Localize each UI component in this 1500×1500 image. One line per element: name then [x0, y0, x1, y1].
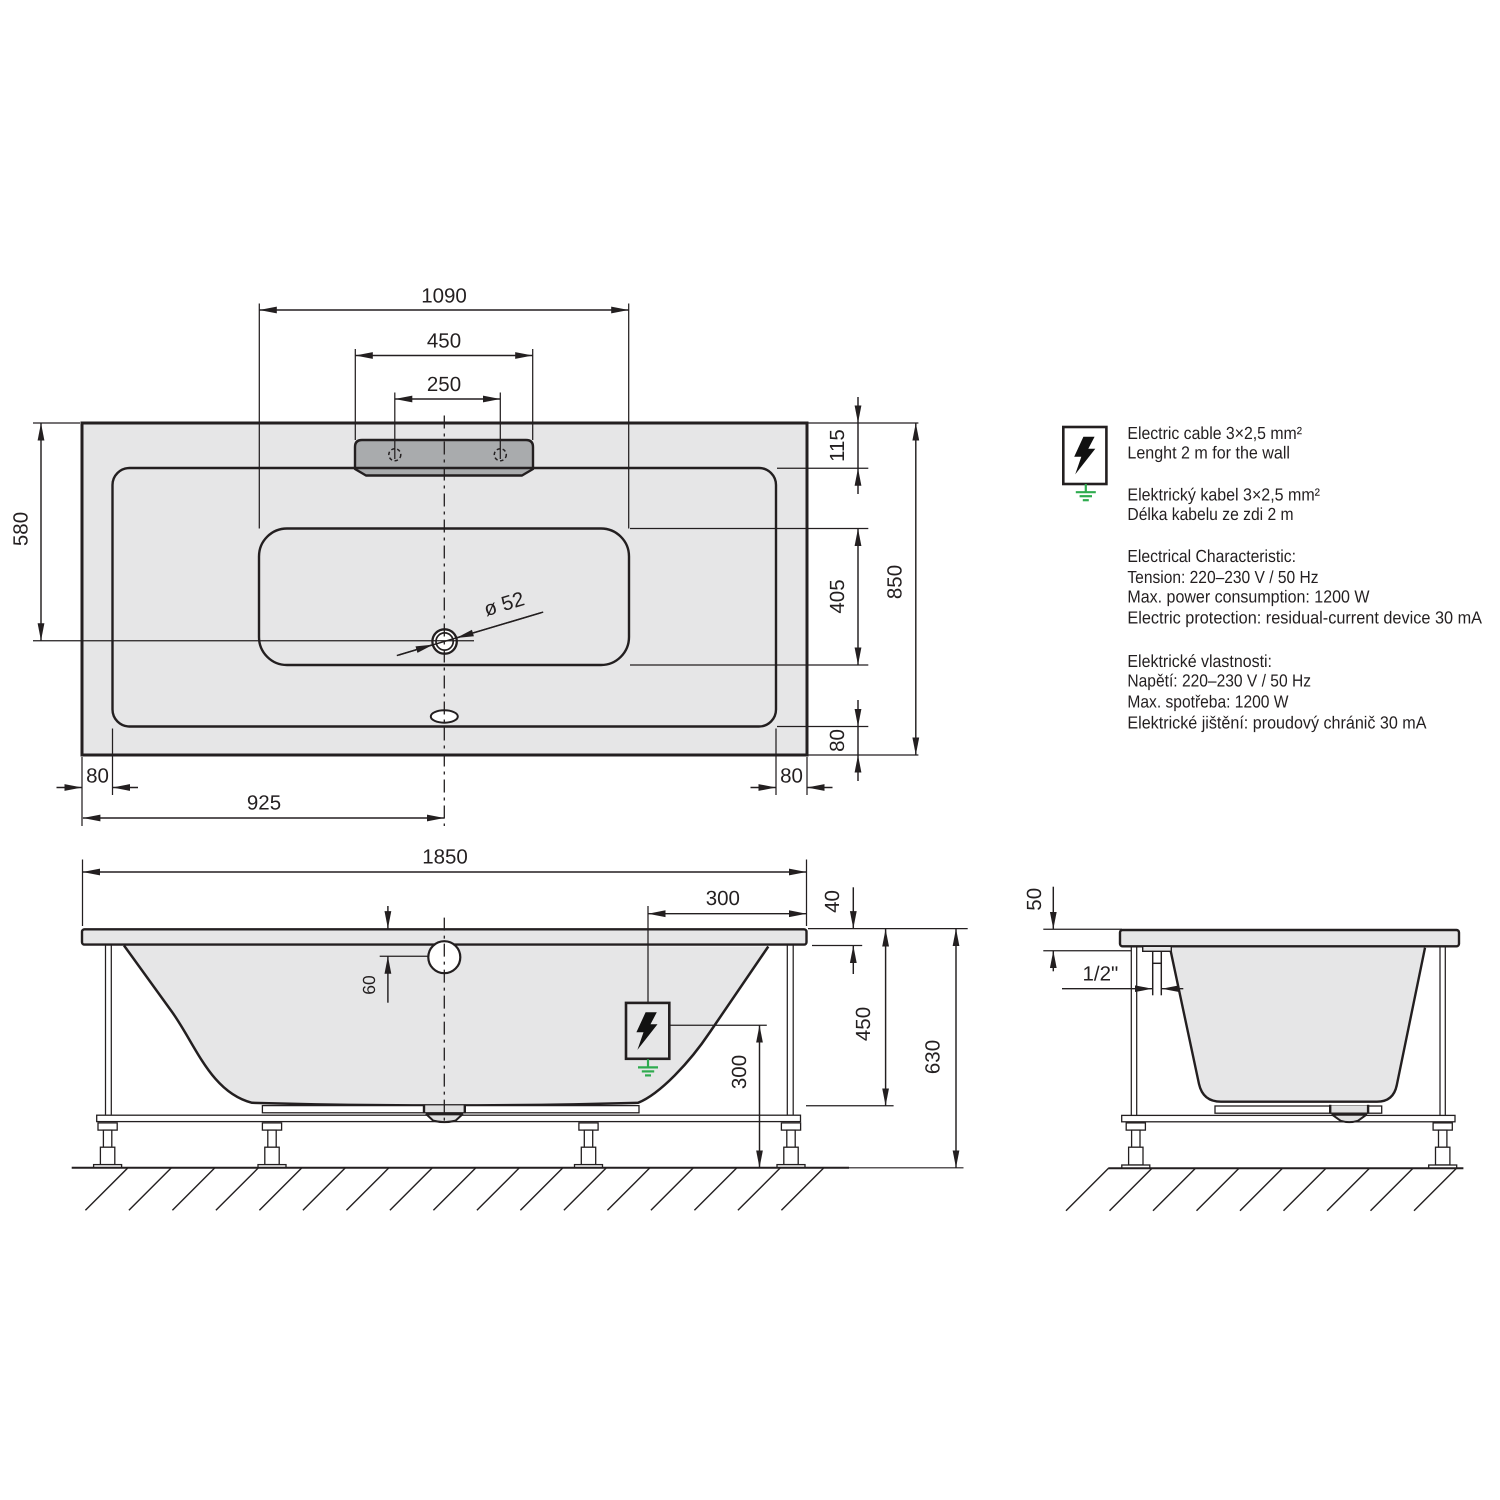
svg-text:925: 925 — [247, 792, 281, 815]
svg-text:80: 80 — [826, 729, 849, 752]
svg-text:450: 450 — [852, 1007, 875, 1041]
svg-text:300: 300 — [706, 887, 740, 910]
svg-text:Napětí: 220–230 V / 50 Hz: Napětí: 220–230 V / 50 Hz — [1127, 671, 1311, 691]
svg-text:450: 450 — [427, 330, 461, 353]
svg-text:Lenght 2 m for the wall: Lenght 2 m for the wall — [1127, 443, 1290, 463]
svg-text:850: 850 — [884, 565, 907, 599]
svg-text:115: 115 — [826, 429, 849, 462]
svg-text:Elektrický kabel 3×2,5 mm²: Elektrický kabel 3×2,5 mm² — [1127, 485, 1320, 505]
svg-text:1090: 1090 — [421, 285, 467, 308]
svg-text:Elektrické jištění: proudový c: Elektrické jištění: proudový chránič 30 … — [1127, 713, 1426, 733]
svg-text:Tension: 220–230 V / 50 Hz: Tension: 220–230 V / 50 Hz — [1127, 567, 1318, 587]
svg-text:Elektrické vlastnosti:: Elektrické vlastnosti: — [1127, 651, 1272, 671]
svg-text:Max. power consumption: 1200 W: Max. power consumption: 1200 W — [1127, 587, 1370, 607]
svg-text:405: 405 — [826, 579, 849, 613]
svg-text:80: 80 — [86, 765, 109, 788]
svg-text:60: 60 — [359, 975, 379, 995]
svg-text:300: 300 — [728, 1055, 751, 1089]
svg-text:630: 630 — [922, 1040, 945, 1074]
svg-text:40: 40 — [821, 890, 844, 913]
svg-text:Electric protection: residual-: Electric protection: residual-current de… — [1127, 608, 1482, 628]
svg-text:1/2": 1/2" — [1083, 963, 1119, 986]
svg-text:Electric cable 3×2,5 mm²: Electric cable 3×2,5 mm² — [1127, 423, 1302, 443]
svg-text:50: 50 — [1023, 888, 1046, 911]
svg-text:Electrical Characteristic:: Electrical Characteristic: — [1127, 546, 1296, 566]
svg-text:580: 580 — [10, 512, 33, 546]
svg-text:250: 250 — [427, 373, 461, 396]
svg-text:80: 80 — [780, 765, 803, 788]
svg-text:Max. spotřeba: 1200 W: Max. spotřeba: 1200 W — [1127, 692, 1289, 712]
svg-text:Délka kabelu ze zdi 2 m: Délka kabelu ze zdi 2 m — [1127, 504, 1293, 524]
svg-text:1850: 1850 — [422, 846, 468, 869]
